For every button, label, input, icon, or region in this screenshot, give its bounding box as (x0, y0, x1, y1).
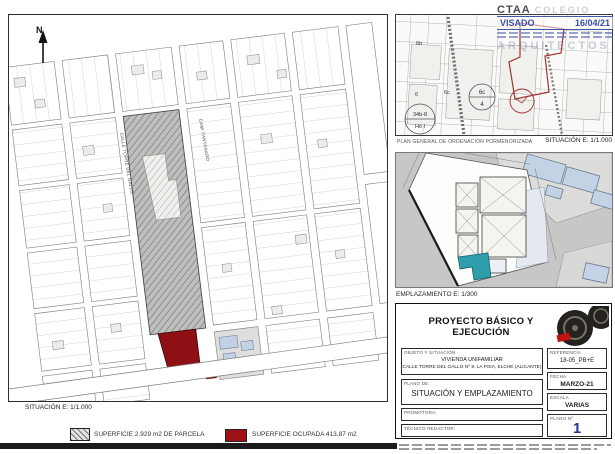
north-arrow-icon: N (36, 25, 48, 63)
plan-sheet: CALLE TORRE DEL GALLO CAMI PANTANARO N S… (0, 0, 615, 454)
field-objeto-label: OBJETO Y SITUACIÓN (404, 350, 455, 355)
stamp-smallprint (497, 32, 613, 38)
north-label: N (36, 25, 43, 35)
visado-date: 16/04/21 (575, 17, 610, 29)
zone-6b: 6b (416, 41, 422, 47)
field-promotora-label: PROMOTORA: (404, 410, 437, 415)
situacion-map: CALLE TORRE DEL GALLO CAMI PANTANARO N (8, 14, 388, 402)
visado-row: VISADO 16/04/21 (497, 16, 613, 30)
emplazamiento-map (395, 152, 613, 288)
plano-value: SITUACIÓN Y EMPLAZAMIENTO (402, 389, 542, 398)
field-referencia: REFERENCIA 18-05_PB+E (547, 348, 607, 369)
referencia-value: 18-05_PB+E (548, 358, 606, 364)
field-escala: ESCALA VARIAS (547, 393, 607, 411)
title-block: PROYECTO BÁSICO Y EJECUCIÓN OBJETO Y SIT… (395, 303, 612, 439)
field-promotora: PROMOTORA: (401, 408, 543, 421)
bottom-edge-bar (0, 443, 397, 449)
pgou-scale-caption: SITUACIÓN E: 1/1.000 (498, 137, 612, 144)
objeto-line1: VIVIENDA UNIFAMILIAR (402, 357, 542, 363)
disclaimer-line-2 (399, 448, 597, 450)
plano-num-value: 1 (548, 420, 606, 437)
field-fecha: FECHA MARZO-21 (547, 372, 607, 390)
stamp-watermark-colegio: COLEGIO (535, 5, 591, 15)
zone-6: 6 (415, 92, 418, 98)
city-blocks (9, 22, 387, 401)
parcela-swatch (70, 428, 90, 441)
situacion-map-drawing: CALLE TORRE DEL GALLO CAMI PANTANARO N (9, 15, 387, 401)
emplazamiento-caption: EMPLAZAMIENTO E: 1/300 (396, 291, 478, 298)
field-fecha-label: FECHA (550, 374, 566, 379)
objeto-line2: CALLE TORRE DEL GALLO Nº 9, LA FOIA, ELC… (402, 365, 542, 370)
field-objeto: OBJETO Y SITUACIÓN VIVIENDA UNIFAMILIAR … (401, 348, 543, 375)
fecha-value: MARZO-21 (548, 381, 606, 388)
studio-logo-icon (545, 306, 609, 346)
ocupada-swatch (225, 429, 247, 442)
field-plano-num: PLANO Nº 1 (547, 414, 607, 437)
stamp-org-logo: CTAA (497, 4, 531, 16)
zone-circle2-bottom: Ho I (415, 124, 426, 130)
visado-stamp: CTAA COLEGIO VISADO 16/04/21 ARQUITECTOS (497, 4, 613, 50)
zone-circle1-top: 6c (479, 90, 485, 96)
stamp-watermark-arquitectos: ARQUITECTOS (497, 40, 613, 52)
escala-value: VARIAS (548, 402, 606, 409)
field-plano-label: PLANO DE: (404, 381, 430, 386)
ocupada-legend-label: SUPERFICIE OCUPADA 413,87 m2 (252, 431, 357, 438)
field-tecnico-label: TÉCNICO REDACTOR: (404, 426, 455, 431)
project-title: PROYECTO BÁSICO Y EJECUCIÓN (406, 316, 556, 338)
field-escala-label: ESCALA (550, 395, 569, 400)
field-plano: PLANO DE: SITUACIÓN Y EMPLAZAMIENTO (401, 379, 543, 405)
parcela-legend-label: SUPERFICIE 2.929 m2 DE PARCELA (94, 431, 204, 438)
field-referencia-label: REFERENCIA (550, 350, 581, 355)
visado-label: VISADO (500, 17, 535, 29)
emplazamiento-drawing (396, 153, 612, 287)
zone-6c: 6c (444, 90, 450, 96)
field-tecnico: TÉCNICO REDACTOR: (401, 424, 543, 437)
disclaimer-line-1 (399, 444, 611, 446)
zone-circle2-top: 34b-8 (413, 112, 427, 118)
situacion-caption: SITUACIÓN E: 1/1.000 (25, 404, 92, 411)
